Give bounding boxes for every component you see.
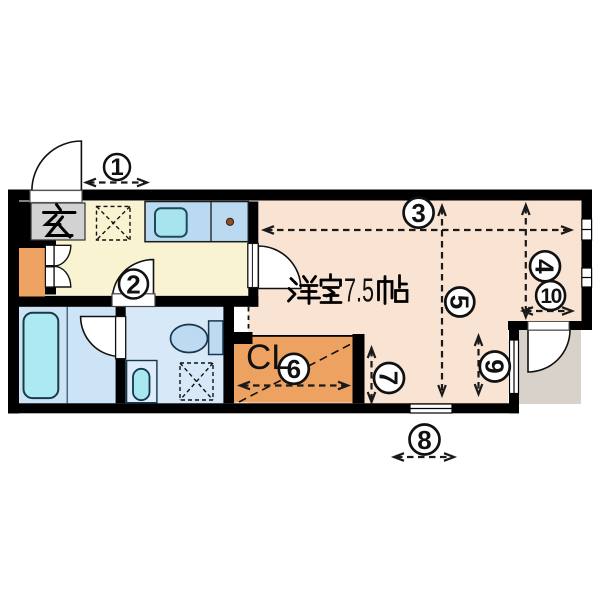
svg-text:1: 1: [110, 154, 123, 181]
svg-text:CL: CL: [246, 338, 291, 377]
svg-text:10: 10: [540, 285, 561, 308]
svg-text:4: 4: [530, 259, 560, 274]
svg-text:3: 3: [411, 198, 425, 228]
svg-text:8: 8: [417, 425, 431, 455]
svg-text:7.5: 7.5: [344, 272, 374, 309]
svg-text:2: 2: [126, 269, 140, 299]
svg-text:9: 9: [480, 359, 510, 373]
svg-text:5: 5: [445, 295, 475, 309]
svg-text:7: 7: [374, 371, 404, 385]
